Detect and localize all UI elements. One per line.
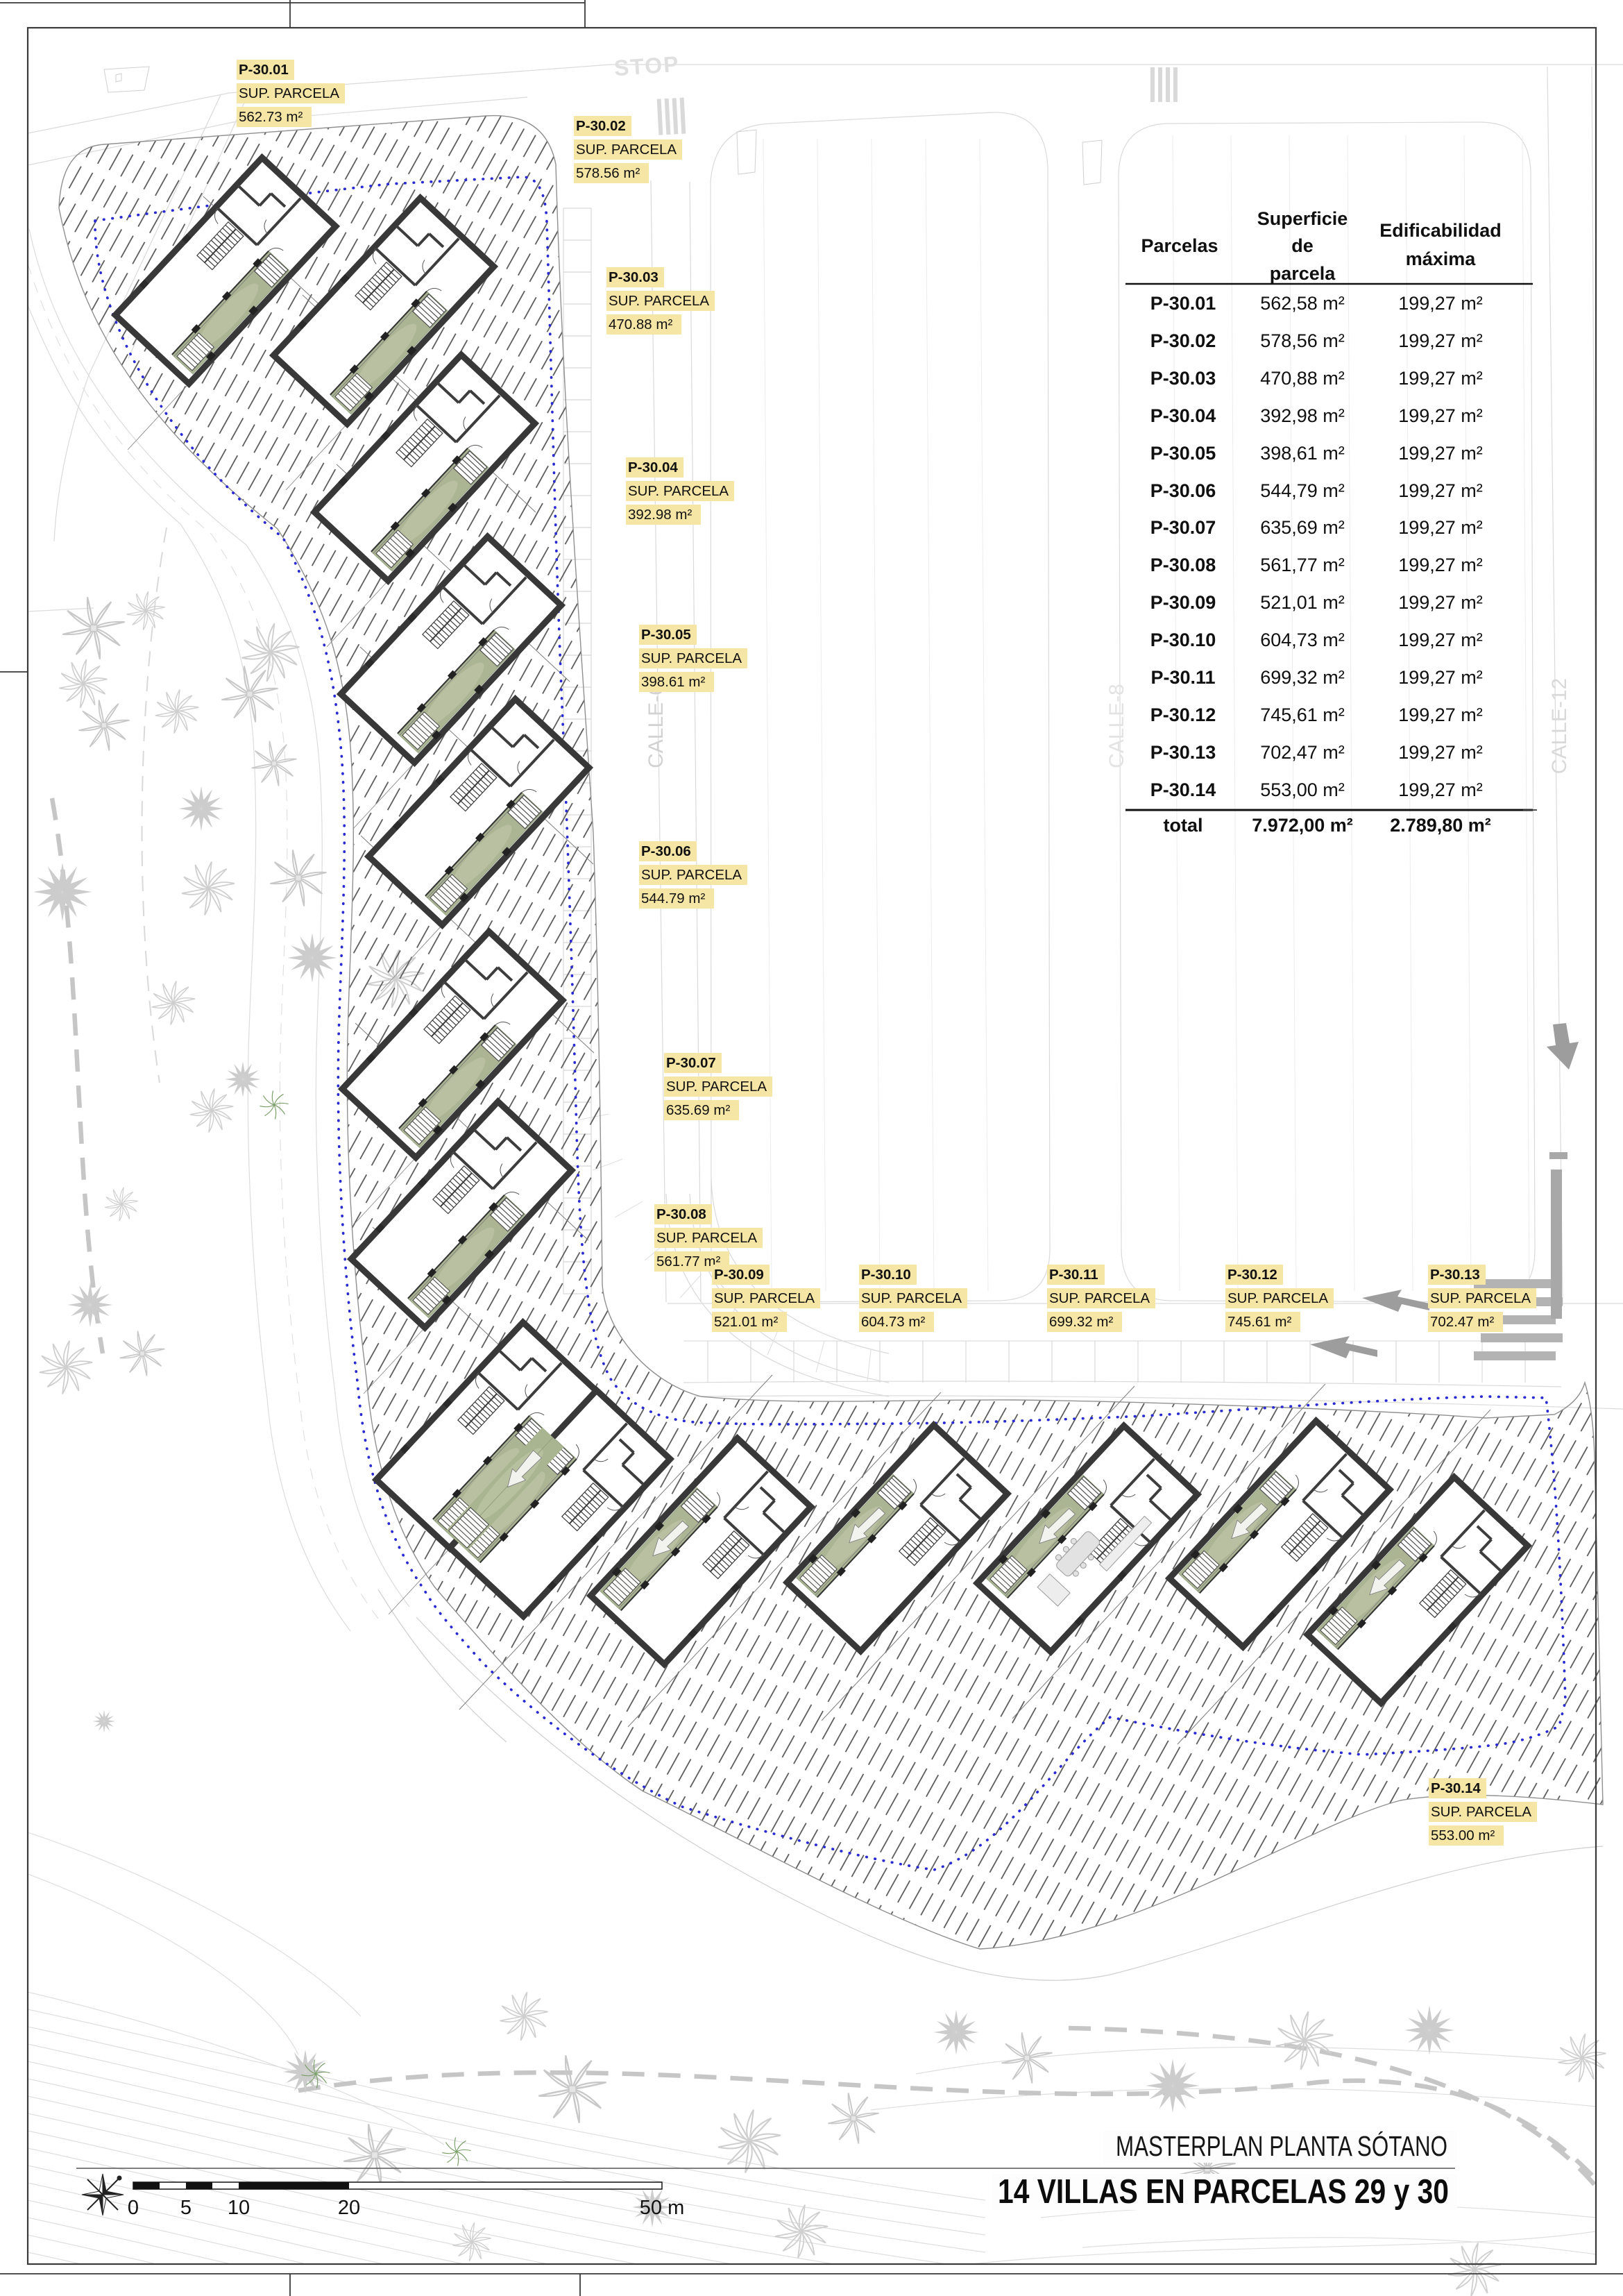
svg-text:P-30.14: P-30.14: [1150, 779, 1216, 800]
svg-text:699.32 m²: 699.32 m²: [1049, 1314, 1113, 1330]
svg-text:702,47 m²: 702,47 m²: [1260, 742, 1345, 763]
svg-text:P-30.13: P-30.13: [1430, 1267, 1480, 1283]
svg-text:7.972,00 m²: 7.972,00 m²: [1252, 815, 1353, 836]
svg-text:398,61 m²: 398,61 m²: [1260, 443, 1345, 464]
svg-text:2.789,80 m²: 2.789,80 m²: [1390, 815, 1491, 836]
svg-text:521.01 m²: 521.01 m²: [714, 1314, 778, 1330]
svg-text:SUP. PARCELA: SUP. PARCELA: [576, 142, 677, 158]
svg-text:STOP: STOP: [613, 51, 681, 81]
svg-text:SUP. PARCELA: SUP. PARCELA: [666, 1079, 767, 1095]
svg-text:521,01 m²: 521,01 m²: [1260, 592, 1345, 613]
svg-text:P-30.01: P-30.01: [1150, 293, 1216, 314]
svg-text:P-30.12: P-30.12: [1150, 704, 1216, 725]
svg-text:P-30.07: P-30.07: [666, 1055, 716, 1071]
svg-text:14 VILLAS EN PARCELAS 29 y 30: 14 VILLAS EN PARCELAS 29 y 30: [998, 2173, 1449, 2211]
svg-text:199,27 m²: 199,27 m²: [1398, 742, 1483, 763]
svg-text:199,27 m²: 199,27 m²: [1398, 555, 1483, 575]
svg-text:50 m: 50 m: [640, 2197, 684, 2219]
svg-text:199,27 m²: 199,27 m²: [1398, 368, 1483, 389]
svg-text:604,73 m²: 604,73 m²: [1260, 630, 1345, 650]
svg-text:P-30.13: P-30.13: [1150, 742, 1216, 763]
svg-text:P-30.10: P-30.10: [1150, 630, 1216, 650]
svg-text:P-30.06: P-30.06: [1150, 480, 1216, 501]
svg-text:562,58 m²: 562,58 m²: [1260, 293, 1345, 314]
svg-text:P-30.03: P-30.03: [1150, 368, 1216, 389]
svg-text:561,77 m²: 561,77 m²: [1260, 555, 1345, 575]
svg-text:CALLE-12: CALLE-12: [1548, 678, 1571, 774]
svg-text:745.61 m²: 745.61 m²: [1227, 1314, 1291, 1330]
svg-text:P-30.11: P-30.11: [1049, 1267, 1098, 1283]
svg-text:20: 20: [338, 2197, 360, 2219]
svg-text:SUP. PARCELA: SUP. PARCELA: [1227, 1290, 1328, 1306]
svg-text:P-30.04: P-30.04: [628, 459, 678, 475]
svg-text:SUP. PARCELA: SUP. PARCELA: [714, 1290, 815, 1306]
svg-text:P-30.07: P-30.07: [1150, 517, 1216, 538]
svg-text:199,27 m²: 199,27 m²: [1398, 704, 1483, 725]
svg-text:SUP. PARCELA: SUP. PARCELA: [628, 483, 729, 499]
svg-text:P-30.01: P-30.01: [239, 62, 289, 78]
svg-text:SUP. PARCELA: SUP. PARCELA: [861, 1290, 962, 1306]
svg-text:392.98 m²: 392.98 m²: [628, 507, 692, 523]
svg-text:MASTERPLAN PLANTA SÓTANO: MASTERPLAN PLANTA SÓTANO: [1116, 2130, 1447, 2162]
svg-text:392,98 m²: 392,98 m²: [1260, 405, 1345, 426]
svg-text:SUP. PARCELA: SUP. PARCELA: [1430, 1290, 1531, 1306]
svg-text:699,32 m²: 699,32 m²: [1260, 667, 1345, 688]
svg-text:635.69 m²: 635.69 m²: [666, 1102, 730, 1118]
svg-text:199,27 m²: 199,27 m²: [1398, 330, 1483, 351]
svg-text:199,27 m²: 199,27 m²: [1398, 443, 1483, 464]
svg-text:745,61 m²: 745,61 m²: [1260, 704, 1345, 725]
svg-text:Parcelas: Parcelas: [1141, 235, 1218, 256]
svg-text:199,27 m²: 199,27 m²: [1398, 630, 1483, 650]
svg-text:604.73 m²: 604.73 m²: [861, 1314, 925, 1330]
svg-text:SUP. PARCELA: SUP. PARCELA: [1049, 1290, 1150, 1306]
svg-text:P-30.09: P-30.09: [714, 1267, 764, 1283]
svg-text:P-30.11: P-30.11: [1150, 667, 1215, 688]
svg-text:SUP. PARCELA: SUP. PARCELA: [656, 1230, 757, 1246]
svg-text:199,27 m²: 199,27 m²: [1398, 667, 1483, 688]
svg-text:199,27 m²: 199,27 m²: [1398, 779, 1483, 800]
svg-text:Edificabilidad: Edificabilidad: [1379, 220, 1502, 241]
svg-text:SUP. PARCELA: SUP. PARCELA: [641, 867, 742, 883]
svg-text:CALLE-8: CALLE-8: [1105, 684, 1128, 768]
svg-text:P-30.08: P-30.08: [1150, 555, 1216, 575]
svg-text:P-30.09: P-30.09: [1150, 592, 1216, 613]
svg-text:199,27 m²: 199,27 m²: [1398, 517, 1483, 538]
svg-text:5: 5: [180, 2197, 192, 2219]
svg-text:P-30.08: P-30.08: [656, 1206, 706, 1222]
svg-text:P-30.05: P-30.05: [1150, 443, 1216, 464]
svg-text:P-30.10: P-30.10: [861, 1267, 911, 1283]
svg-text:P-30.03: P-30.03: [609, 269, 658, 285]
svg-text:de: de: [1291, 235, 1314, 256]
svg-text:total: total: [1164, 815, 1203, 836]
svg-text:P-30.14: P-30.14: [1431, 1780, 1481, 1796]
svg-text:SUP. PARCELA: SUP. PARCELA: [609, 293, 709, 309]
svg-text:199,27 m²: 199,27 m²: [1398, 293, 1483, 314]
svg-text:CALLE-6: CALLE-6: [645, 684, 668, 768]
svg-text:544.79 m²: 544.79 m²: [641, 890, 705, 906]
svg-text:553,00 m²: 553,00 m²: [1260, 779, 1345, 800]
svg-text:199,27 m²: 199,27 m²: [1398, 592, 1483, 613]
svg-text:470.88 m²: 470.88 m²: [609, 316, 672, 332]
svg-text:P-30.06: P-30.06: [641, 843, 691, 859]
svg-text:P-30.02: P-30.02: [576, 118, 626, 134]
svg-text:578.56 m²: 578.56 m²: [576, 165, 640, 181]
svg-text:P-30.12: P-30.12: [1227, 1267, 1277, 1283]
svg-text:P-30.04: P-30.04: [1150, 405, 1216, 426]
svg-text:553.00 m²: 553.00 m²: [1431, 1827, 1495, 1843]
svg-text:Superficie: Superficie: [1257, 208, 1348, 229]
svg-text:578,56 m²: 578,56 m²: [1260, 330, 1345, 351]
svg-text:199,27 m²: 199,27 m²: [1398, 480, 1483, 501]
svg-text:562.73 m²: 562.73 m²: [239, 109, 303, 125]
svg-text:SUP. PARCELA: SUP. PARCELA: [239, 85, 339, 101]
svg-text:máxima: máxima: [1406, 248, 1477, 269]
svg-text:635,69 m²: 635,69 m²: [1260, 517, 1345, 538]
svg-text:561.77 m²: 561.77 m²: [656, 1253, 720, 1269]
svg-text:470,88 m²: 470,88 m²: [1260, 368, 1345, 389]
svg-text:SUP. PARCELA: SUP. PARCELA: [1431, 1804, 1531, 1820]
svg-text:544,79 m²: 544,79 m²: [1260, 480, 1345, 501]
svg-text:0: 0: [128, 2197, 139, 2219]
svg-text:P-30.05: P-30.05: [641, 627, 691, 643]
svg-text:10: 10: [228, 2197, 250, 2219]
svg-text:SUP. PARCELA: SUP. PARCELA: [641, 650, 742, 666]
svg-text:parcela: parcela: [1270, 263, 1336, 284]
svg-text:702.47 m²: 702.47 m²: [1430, 1314, 1494, 1330]
svg-text:199,27 m²: 199,27 m²: [1398, 405, 1483, 426]
svg-text:P-30.02: P-30.02: [1150, 330, 1216, 351]
svg-text:398.61 m²: 398.61 m²: [641, 674, 705, 690]
